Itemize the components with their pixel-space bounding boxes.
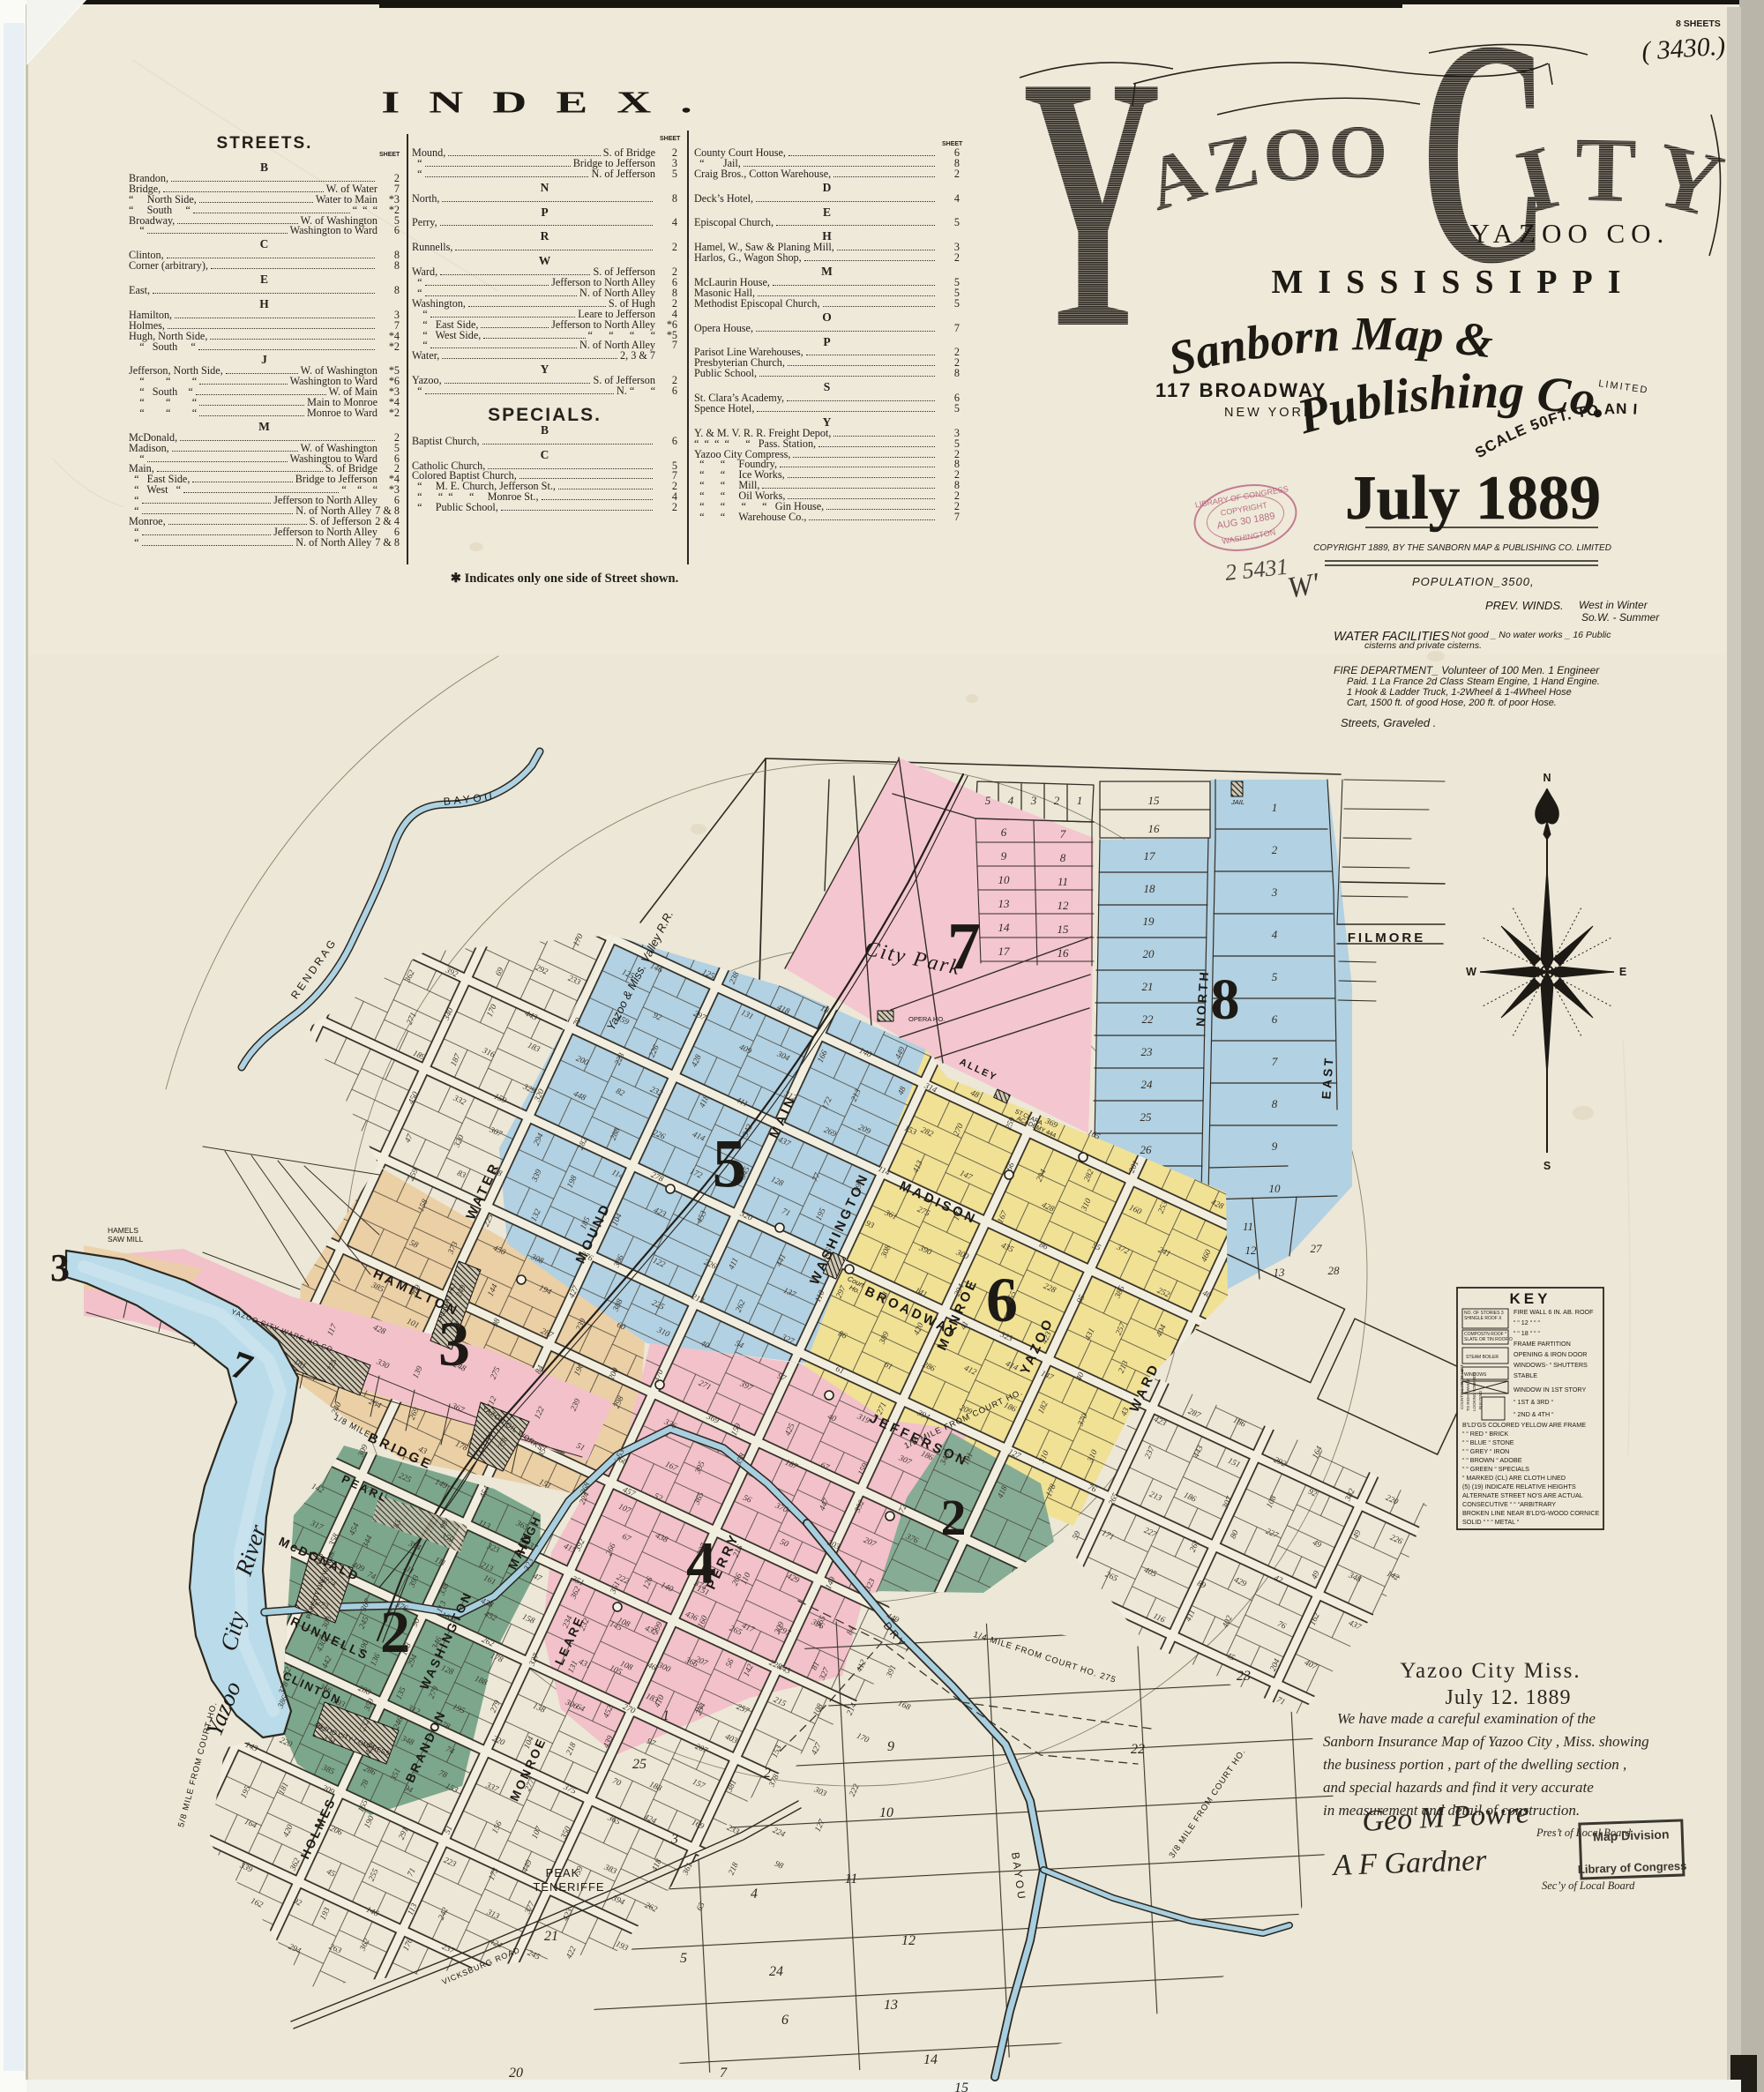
svg-text:B'LD'GS COLORED YELLOW ARE FRA: B'LD'GS COLORED YELLOW ARE FRAME — [1462, 1421, 1586, 1429]
svg-text:8: 8 — [1272, 1097, 1278, 1110]
svg-text:“ “ RED “ BRIC: “ “ RED “ BRICK — [1462, 1430, 1509, 1438]
svg-text:E: E — [1619, 966, 1626, 978]
svg-text:5: 5 — [713, 1124, 747, 1201]
svg-text:23: 23 — [1237, 1669, 1251, 1684]
svg-text:TENERIFFE: TENERIFFE — [533, 1880, 604, 1894]
svg-text:4: 4 — [1008, 794, 1014, 807]
svg-text:13: 13 — [998, 897, 1011, 910]
svg-text:7: 7 — [1272, 1055, 1278, 1068]
svg-text:5: 5 — [680, 1951, 687, 1966]
svg-text:1: 1 — [662, 1708, 669, 1723]
svg-text:Streets, Graveled .: Streets, Graveled . — [1341, 716, 1436, 729]
svg-text:12: 12 — [901, 1933, 916, 1948]
svg-text:6: 6 — [1272, 1012, 1278, 1026]
svg-text:22: 22 — [1142, 1012, 1155, 1026]
svg-text:STEAM BOILER: STEAM BOILER — [1466, 1355, 1499, 1360]
svg-text:12: 12 — [1058, 899, 1070, 912]
svg-text:4: 4 — [751, 1887, 758, 1901]
svg-text:WINDOWS- “ SHUTTERS: WINDOWS- “ SHUTTERS — [1514, 1361, 1588, 1369]
svg-text:“ 2ND & 4TH “: “ 2ND & 4TH “ — [1514, 1410, 1554, 1418]
svg-text:1 Hook & Ladder Truck, 1-2W: 1 Hook & Ladder Truck, 1-2Wheel & 1-4Whe… — [1347, 687, 1572, 698]
svg-text:27: 27 — [1311, 1242, 1323, 1255]
svg-text:24: 24 — [769, 1964, 783, 1979]
svg-text:“ “ 12 “ “ “: “ “ 12 “ “ “ — [1514, 1319, 1541, 1326]
svg-text:3: 3 — [1271, 885, 1278, 899]
svg-text:BROKEN LINE NEAR B'LD'G-WOOD C: BROKEN LINE NEAR B'LD'G-WOOD CORNICE — [1462, 1509, 1600, 1517]
svg-text:7: 7 — [1060, 827, 1066, 841]
svg-text:16: 16 — [1058, 946, 1070, 960]
svg-text:FRAME PARTITION: FRAME PARTITION — [1514, 1340, 1571, 1348]
svg-text:17: 17 — [1144, 849, 1156, 863]
svg-text:13: 13 — [1274, 1266, 1286, 1279]
svg-text:Sanborn Insurance Map of Y: Sanborn Insurance Map of Yazoo City , Mi… — [1323, 1733, 1649, 1750]
svg-text:Paid. 1 La France 2d Class St: Paid. 1 La France 2d Class Steam Engine,… — [1347, 676, 1600, 687]
svg-text:TO RIGHT WHILE: TO RIGHT WHILE — [1466, 1378, 1470, 1411]
svg-text:2: 2 — [941, 1489, 967, 1546]
svg-text:21: 21 — [1142, 980, 1154, 993]
svg-text:17: 17 — [998, 945, 1011, 958]
svg-text:10: 10 — [879, 1805, 893, 1820]
svg-text:22: 22 — [1131, 1742, 1145, 1757]
svg-text:A F Gardner: A F Gardner — [1331, 1844, 1488, 1882]
svg-text:19: 19 — [1143, 915, 1155, 928]
svg-text:CONSECUTIVE “ “ “ARBITR: CONSECUTIVE “ “ “ARBITRARY — [1462, 1500, 1556, 1508]
svg-text:15: 15 — [1058, 923, 1070, 936]
svg-text:9: 9 — [887, 1739, 894, 1754]
svg-text:July 1889: July 1889 — [1345, 464, 1601, 533]
svg-text:8 SHEETS: 8 SHEETS — [1676, 19, 1721, 29]
svg-text:25: 25 — [1140, 1110, 1153, 1124]
svg-text:FIRE WALL 6 IN. AB. ROOF: FIRE WALL 6 IN. AB. ROOF — [1514, 1308, 1594, 1316]
svg-text:“ 1ST & 3RD “: “ 1ST & 3RD “ — [1514, 1398, 1554, 1406]
svg-text:117 BROADWAY: 117 BROADWAY — [1155, 379, 1327, 401]
svg-text:18: 18 — [1144, 882, 1156, 895]
svg-text:MISSISSIPPI: MISSISSIPPI — [1272, 264, 1636, 301]
svg-text:NEW YORK: NEW YORK — [1224, 406, 1315, 420]
svg-text:(5) (19) INDICATE RELATIVE HEI: (5) (19) INDICATE RELATIVE HEIGHTS — [1462, 1483, 1576, 1491]
svg-text:4: 4 — [1272, 928, 1278, 941]
svg-text:the business portion , part: the business portion , part of the dwell… — [1323, 1756, 1626, 1773]
svg-text:SAW MILL: SAW MILL — [108, 1235, 144, 1244]
svg-text:11: 11 — [1243, 1220, 1253, 1233]
svg-text:20: 20 — [509, 2066, 523, 2081]
svg-text:2: 2 — [1272, 843, 1278, 856]
svg-text:1: 1 — [1077, 794, 1083, 807]
svg-text:26: 26 — [1140, 1143, 1153, 1156]
svg-text:West in Winter: West in Winter — [1579, 599, 1648, 611]
svg-text:SHINGLE ROOF X: SHINGLE ROOF X — [1464, 1316, 1502, 1321]
svg-text:FIRE DEPARTMENT_ Volunteer of: FIRE DEPARTMENT_ Volunteer of 100 Men. 1… — [1334, 664, 1600, 676]
svg-text:S: S — [1543, 1160, 1551, 1172]
svg-text:Yazoo City Miss.: Yazoo City Miss. — [1400, 1659, 1581, 1683]
svg-text:W′: W′ — [1285, 567, 1322, 605]
svg-text:WINDOW IN 1ST STORY: WINDOW IN 1ST STORY — [1514, 1386, 1586, 1393]
svg-text:LOOKING TOWARDS: LOOKING TOWARDS — [1472, 1372, 1476, 1411]
svg-text:7: 7 — [720, 2066, 728, 2081]
svg-text:cisterns and private cisterns.: cisterns and private cisterns. — [1364, 640, 1482, 651]
svg-text:2: 2 — [1054, 794, 1060, 807]
svg-text:SLATE OR TIN ROOF O: SLATE OR TIN ROOF O — [1464, 1337, 1513, 1342]
svg-text:9: 9 — [1001, 849, 1007, 863]
svg-text:10: 10 — [998, 873, 1011, 886]
svg-text:20: 20 — [1143, 947, 1155, 960]
svg-text:15: 15 — [1148, 794, 1161, 807]
svg-text:JAIL: JAIL — [1230, 798, 1245, 806]
svg-text:“ “ BROWN “ ADOBE: “ “ BROWN “ ADOBE — [1462, 1456, 1522, 1464]
svg-text:11: 11 — [845, 1872, 858, 1887]
svg-text:5: 5 — [985, 794, 991, 807]
svg-text:Not good _ No water works _: Not good _ No water works _ 16 Public — [1451, 630, 1611, 640]
svg-text:“ “ 18 “ “ “: “ “ 18 “ “ “ — [1514, 1329, 1541, 1337]
svg-text:1: 1 — [1272, 801, 1278, 814]
svg-text:16: 16 — [1148, 822, 1161, 835]
svg-text:“ “ BLUE “ STON: “ “ BLUE “ STONE — [1462, 1438, 1514, 1446]
svg-text:5: 5 — [1272, 970, 1278, 983]
svg-text:YAZOO CO.: YAZOO CO. — [1470, 218, 1671, 249]
svg-text:Map Division: Map Division — [1593, 1827, 1670, 1844]
svg-text:6: 6 — [1001, 826, 1007, 839]
svg-text:3: 3 — [1030, 794, 1037, 807]
svg-text:N: N — [1543, 772, 1551, 784]
svg-text:24: 24 — [1141, 1078, 1154, 1091]
svg-text:3: 3 — [670, 1832, 678, 1847]
svg-text:Cart, 1500 ft. of good Hose,: Cart, 1500 ft. of good Hose, 200 ft. of … — [1347, 698, 1557, 708]
svg-text:BUILDING: BUILDING — [1478, 1390, 1483, 1409]
svg-text:POPULATION_3500,: POPULATION_3500, — [1412, 575, 1535, 588]
svg-text:12: 12 — [1245, 1244, 1258, 1257]
svg-text:23: 23 — [1141, 1045, 1154, 1058]
svg-text:8: 8 — [1060, 851, 1066, 864]
svg-text:OPERA HO.: OPERA HO. — [908, 1015, 945, 1023]
svg-text:Y: Y — [1022, 2, 1162, 404]
svg-text:STABLE: STABLE — [1514, 1371, 1537, 1379]
svg-text:ALTERNATE STREET NO'S ARE ACTU: ALTERNATE STREET NO'S ARE ACTUAL — [1462, 1491, 1583, 1499]
svg-text:W: W — [1466, 966, 1476, 978]
svg-text:13: 13 — [884, 1998, 898, 2013]
svg-text:10: 10 — [1269, 1182, 1282, 1195]
svg-text:21: 21 — [544, 1929, 558, 1944]
svg-text:15: 15 — [954, 2081, 968, 2092]
svg-text:14: 14 — [998, 921, 1011, 934]
svg-text:COUNTING FROM LEFT: COUNTING FROM LEFT — [1460, 1364, 1464, 1409]
svg-text:KEY: KEY — [1510, 1290, 1551, 1307]
svg-text:HAMELS: HAMELS — [108, 1226, 138, 1235]
svg-text:25: 25 — [632, 1757, 647, 1772]
svg-text:8: 8 — [1211, 968, 1240, 1032]
svg-text:6: 6 — [781, 2013, 789, 2028]
svg-text:11: 11 — [1058, 875, 1068, 888]
svg-text:“ “ GREEN “ SPECIA: “ “ GREEN “ SPECIALS — [1462, 1465, 1529, 1473]
svg-text:and special hazards and fi: and special hazards and find it very acc… — [1323, 1779, 1594, 1796]
svg-text:OPENING & IRON DOOR: OPENING & IRON DOOR — [1514, 1350, 1587, 1358]
svg-text:28: 28 — [1328, 1264, 1341, 1277]
svg-text:July 12. 1889: July 12. 1889 — [1445, 1686, 1571, 1709]
svg-text:PREV. WINDS.: PREV. WINDS. — [1485, 599, 1564, 612]
svg-text:Sec’y of Local Board: Sec’y of Local Board — [1542, 1879, 1635, 1892]
svg-text:3: 3 — [50, 1246, 70, 1289]
svg-text:SOLID “ “ “ METAL: SOLID “ “ “ METAL “ — [1462, 1518, 1520, 1526]
svg-text:So.W. - Summer: So.W. - Summer — [1581, 611, 1660, 624]
svg-text:FILMORE: FILMORE — [1348, 930, 1426, 945]
svg-text:COPYRIGHT 1889, BY THE SANBORN: COPYRIGHT 1889, BY THE SANBORN MAP & PUB… — [1313, 543, 1611, 553]
svg-text:2: 2 — [764, 1766, 771, 1781]
svg-text:“ MARKED (CL) ARE CLOTH LINE: “ MARKED (CL) ARE CLOTH LINED — [1462, 1474, 1566, 1482]
svg-text:“ “ GREY “ IRON: “ “ GREY “ IRON — [1462, 1447, 1509, 1455]
svg-text:We have made a careful exam: We have made a careful examination of th… — [1337, 1710, 1596, 1727]
svg-text:9: 9 — [1272, 1139, 1278, 1153]
svg-text:( 3430.): ( 3430.) — [1641, 31, 1726, 66]
svg-text:14: 14 — [923, 2052, 938, 2067]
